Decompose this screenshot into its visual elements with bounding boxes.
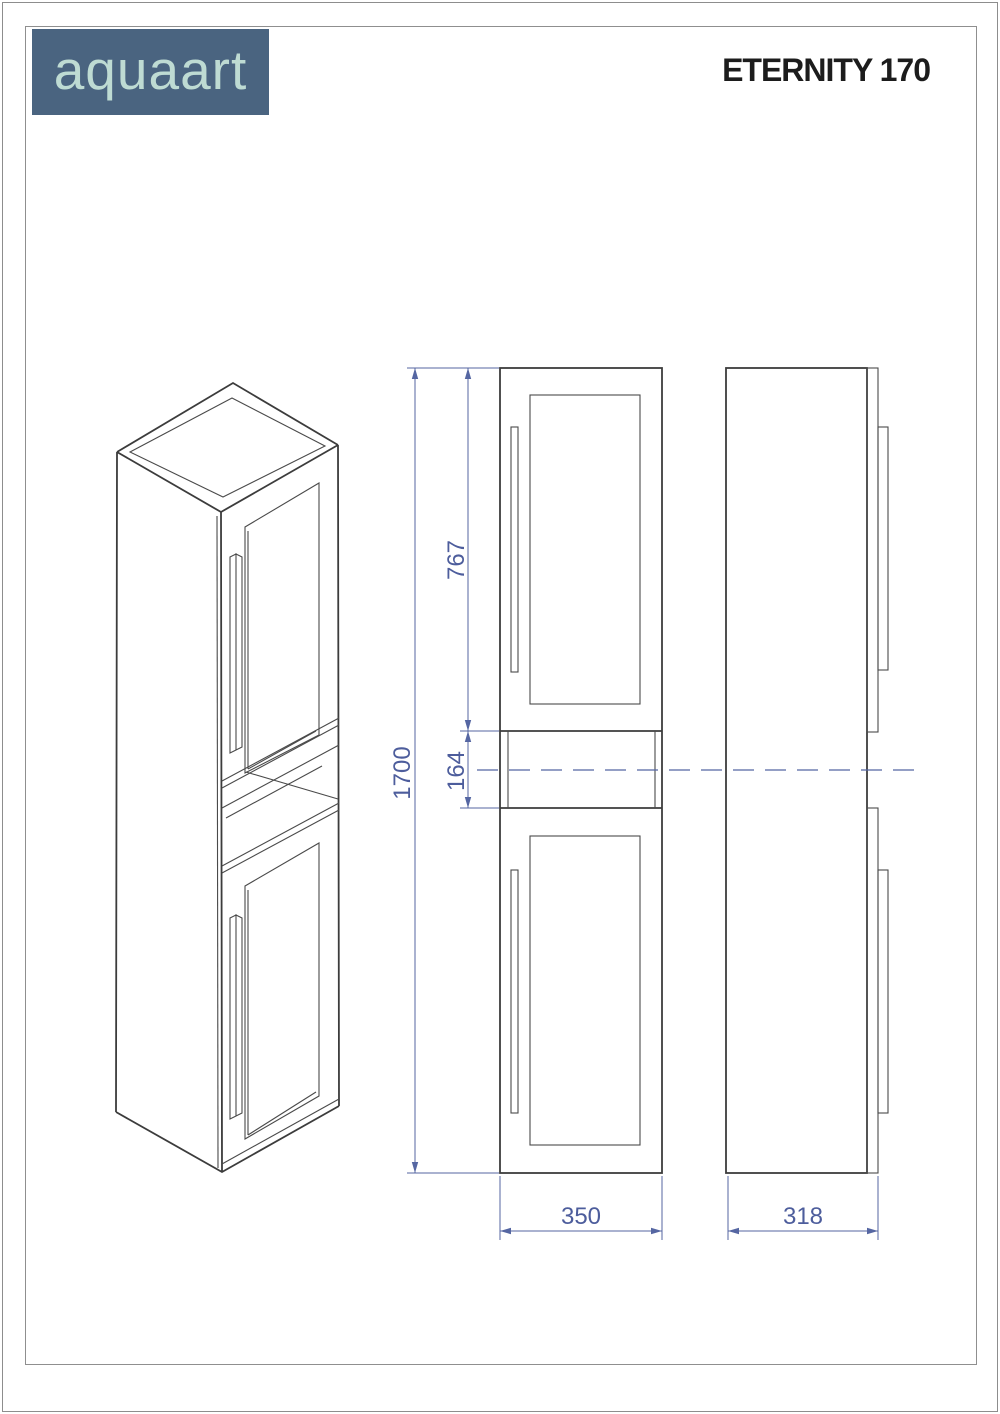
iso-upper-door-panel-recess bbox=[248, 531, 316, 769]
dim-upper-section-height: 767 bbox=[443, 540, 470, 580]
side-upper-handle-profile bbox=[878, 427, 888, 670]
dim-depth: 318 bbox=[783, 1203, 823, 1230]
technical-drawing: 1700 767 164 350 318 bbox=[0, 0, 1000, 1414]
dimension-lines bbox=[415, 368, 878, 1231]
dim-width: 350 bbox=[561, 1203, 601, 1230]
iso-upper-door-panel bbox=[245, 483, 319, 773]
iso-top-panel bbox=[130, 398, 325, 497]
side-upper-door-profile bbox=[867, 368, 878, 732]
front-lower-door-handle bbox=[511, 870, 518, 1113]
side-lower-door-profile bbox=[867, 808, 878, 1173]
iso-niche-edges bbox=[222, 718, 339, 873]
dimension-arrows bbox=[412, 368, 878, 1234]
iso-lower-door-panel bbox=[245, 843, 319, 1139]
dim-total-height: 1700 bbox=[389, 746, 416, 799]
extension-lines bbox=[407, 368, 878, 1240]
iso-niche-interior bbox=[226, 766, 338, 818]
dim-niche-height: 164 bbox=[443, 751, 470, 791]
iso-lower-door-panel-recess bbox=[248, 890, 316, 1135]
iso-upper-door-handle bbox=[230, 554, 242, 753]
spec-sheet-page: aquaart ETERNITY 170 bbox=[0, 0, 1000, 1414]
iso-lower-door-handle bbox=[230, 915, 242, 1119]
isometric-view bbox=[116, 383, 339, 1172]
front-upper-door-handle bbox=[511, 427, 518, 672]
front-upper-door-panel bbox=[530, 395, 640, 704]
front-lower-door-panel bbox=[530, 836, 640, 1145]
iso-bottom-edge bbox=[222, 1099, 339, 1164]
iso-front-edge bbox=[217, 516, 218, 1168]
side-lower-handle-profile bbox=[878, 870, 888, 1113]
